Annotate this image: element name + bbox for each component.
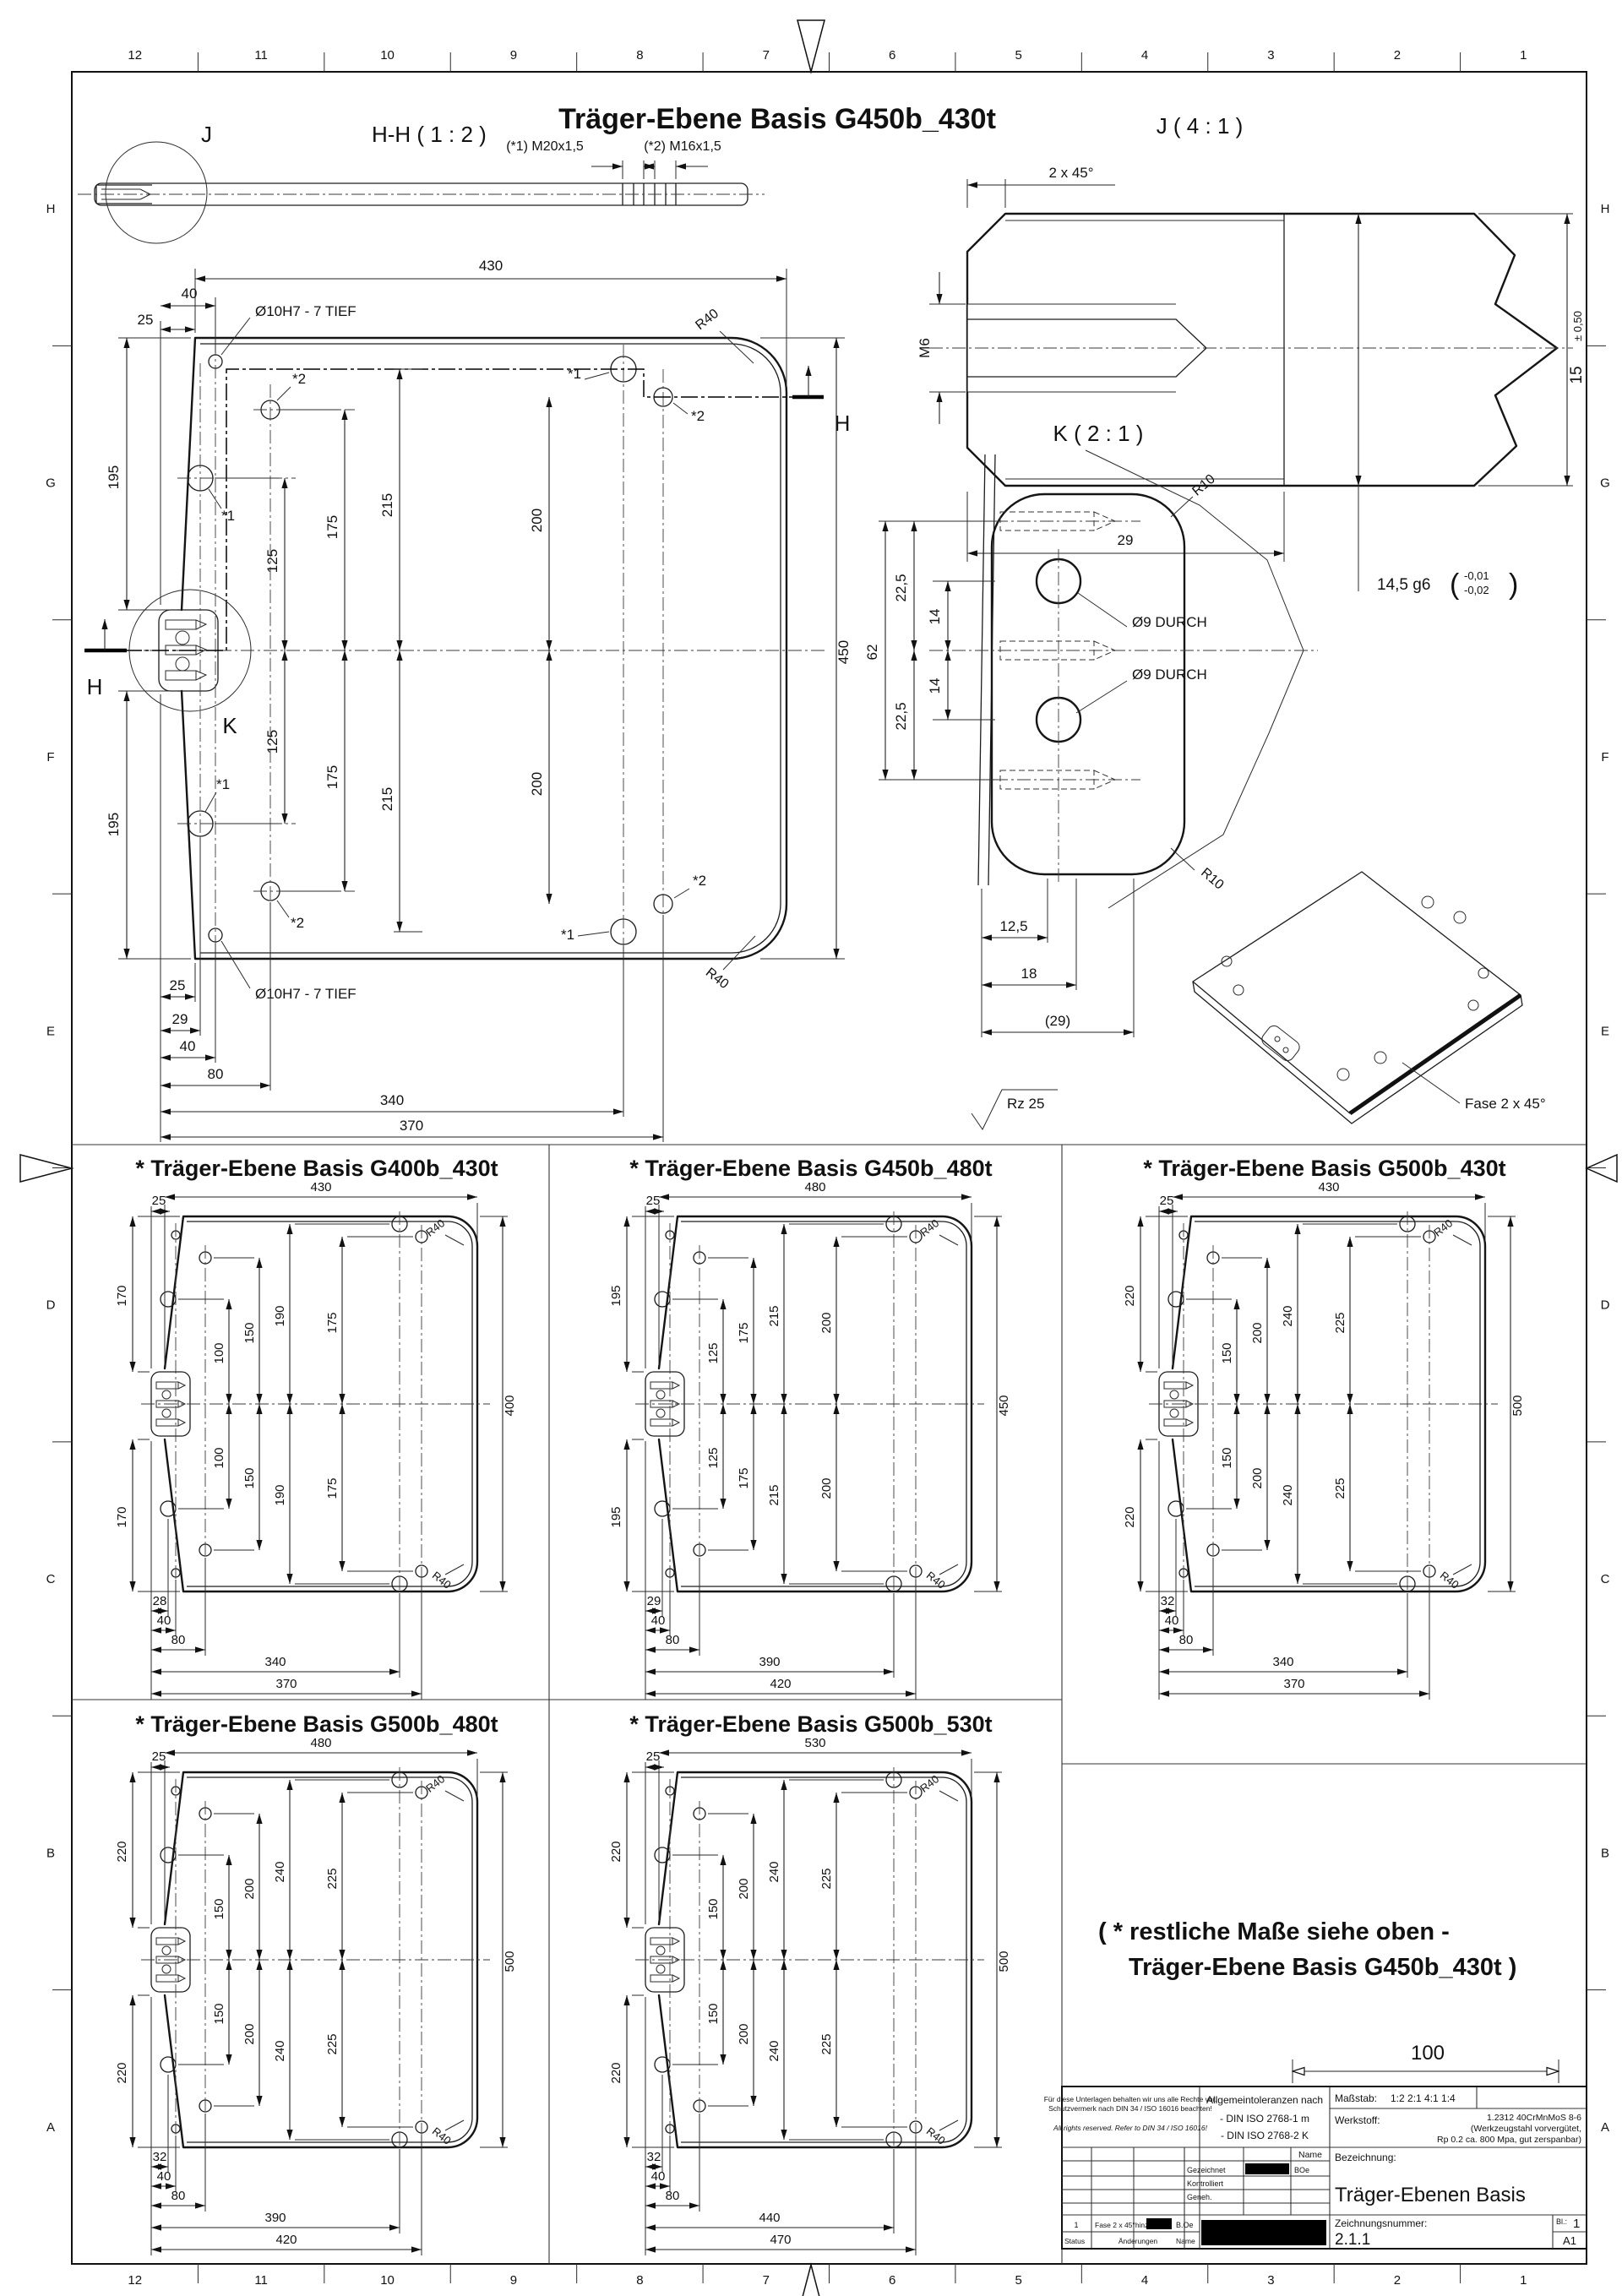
variant-title: * Träger-Ebene Basis G500b_430t [1143, 1156, 1505, 1181]
border-row-label: E [1601, 1024, 1609, 1038]
border-row-label: H [1601, 202, 1610, 216]
tb-sheet-no: 1 [1573, 2217, 1580, 2231]
dim-b80: 80 [171, 2189, 186, 2203]
dim-225-upper: 22,5 [893, 574, 909, 601]
border-row-label: C [1601, 1572, 1610, 1586]
scale-bar-value: 100 [1411, 2042, 1445, 2065]
dim-b40: 40 [651, 2169, 666, 2184]
dim-25: 25 [646, 1749, 661, 1764]
border-column-label: 1 [1520, 2273, 1527, 2288]
dim-25: 25 [1160, 1194, 1174, 1208]
tb-rev-no: 1 [1074, 2221, 1078, 2229]
border-row-label: G [46, 476, 56, 491]
border-column-label: 7 [763, 2273, 770, 2288]
dim-d1-lower: 150 [242, 1467, 257, 1488]
surface-roughness: Rz 25 [972, 1090, 1058, 1129]
variant-panel: * Träger-Ebene Basis G400b_430t 4 [115, 1156, 517, 1700]
dim-b4: 390 [264, 2211, 286, 2225]
dim-b80: 80 [666, 1633, 680, 1647]
border-column-label: 1 [1520, 48, 1527, 63]
border-column-label: 6 [889, 48, 895, 63]
tb-disclaimer-de1: Für diese Unterlagen behalten wir uns al… [1044, 2095, 1217, 2103]
dim-b5: 370 [1283, 1677, 1304, 1691]
dim-d1-lower: 200 [737, 2023, 751, 2044]
border-column-label: 8 [636, 2273, 643, 2288]
dim-d0-lower: 100 [212, 1447, 226, 1468]
border-column-label: 10 [380, 2273, 395, 2288]
tb-material-line1: 1.2312 40CrMnMoS 8-6 [1487, 2113, 1581, 2123]
dim-d3-lower: 225 [1333, 1477, 1347, 1499]
tb-tol-line2: - DIN ISO 2768-2 K [1221, 2130, 1309, 2141]
radius-k-top: R10 [1189, 472, 1217, 499]
section-hh-title: H-H ( 1 : 2 ) [372, 122, 487, 147]
border-column-label: 11 [254, 2273, 268, 2288]
roughness-value: Rz 25 [1007, 1096, 1044, 1112]
border-row-label: H [46, 202, 56, 216]
dim-b40: 40 [157, 2169, 171, 2184]
dim-d2-lower: 215 [767, 1484, 781, 1505]
dim-215-upper: 215 [379, 493, 395, 517]
dim-18: 18 [1021, 966, 1037, 982]
dim-25: 25 [138, 312, 154, 328]
dia-tol: ± 0,50 [1571, 311, 1584, 341]
dim-right: 500 [1510, 1395, 1525, 1416]
dim-d2-lower: 240 [767, 2040, 781, 2061]
dim-b40: 40 [157, 1613, 171, 1628]
dim-125-lower: 125 [264, 730, 280, 754]
radius-top: R40 [693, 307, 721, 334]
dim-d0-lower: 150 [1220, 1447, 1234, 1468]
dim-side-lower: 220 [1123, 1506, 1137, 1527]
radius-bottom: R40 [703, 966, 732, 993]
detail-circle-j-label: J [201, 122, 212, 147]
variant-panel: * Träger-Ebene Basis G500b_430t 4 [1123, 1156, 1525, 1700]
dim-b4: 390 [759, 1655, 780, 1669]
tb-disclaimer-en: All rights reserved. Refer to DIN 34 / I… [1053, 2124, 1208, 2132]
dim-d2-lower: 240 [1281, 1484, 1295, 1505]
dim-side-upper: 220 [115, 1841, 129, 1862]
redaction-box-large [1201, 2220, 1326, 2245]
dim-side-lower: 220 [115, 2062, 129, 2083]
dim-d2-upper: 215 [767, 1305, 781, 1326]
dim-d3-lower: 175 [325, 1477, 340, 1499]
fit-tol-upper: -0,01 [1464, 569, 1489, 582]
dim-b5: 470 [770, 2233, 791, 2247]
dim-side-upper: 170 [115, 1285, 129, 1306]
tb-approved-label: Geneh. [1187, 2193, 1212, 2201]
dim-40: 40 [182, 286, 198, 302]
dim-b40: 40 [180, 1038, 196, 1054]
iso-view: Fase 2 x 45° [1193, 872, 1546, 1124]
thread-callout-2: (*2) M16x1,5 [644, 139, 721, 154]
dim-25: 25 [646, 1194, 661, 1208]
dim-side-lower: 170 [115, 1506, 129, 1527]
dim-top: 430 [1318, 1180, 1339, 1194]
border-column-label: 10 [380, 48, 395, 63]
title-block: Für diese Unterlagen behalten wir uns al… [1044, 2087, 1587, 2249]
dim-b5: 420 [770, 1677, 791, 1691]
dim-b1: 29 [647, 1594, 661, 1608]
fit-paren-close: ) [1509, 569, 1518, 601]
dim-d3-upper: 175 [325, 1312, 340, 1333]
border-column-label: 2 [1394, 48, 1401, 63]
hole-label-star1-ll: *1 [216, 776, 230, 792]
dim-d3-upper: 225 [819, 1868, 834, 1889]
tb-tol-line1: - DIN ISO 2768-1 m [1220, 2113, 1309, 2125]
dim-d0-upper: 125 [706, 1342, 721, 1363]
tb-disclaimer-de2: Schutzvermerk nach DIN 34 / ISO 16016 be… [1048, 2104, 1212, 2113]
dim-right: 500 [997, 1951, 1011, 1972]
dim-d3-upper: 225 [1333, 1312, 1347, 1333]
variant-panels: * Träger-Ebene Basis G400b_430t 4 [115, 1156, 1525, 2255]
dim-b1: 32 [647, 2150, 661, 2164]
variant-title: * Träger-Ebene Basis G500b_480t [135, 1711, 498, 1737]
dim-d3-lower: 225 [819, 2033, 834, 2054]
tb-checked-label: Kontrolliert [1187, 2179, 1224, 2188]
dim-25: 25 [152, 1194, 166, 1208]
border-column-label: 12 [128, 2273, 142, 2288]
border-row-label: A [1601, 2120, 1609, 2135]
dim-225-lower: 22,5 [893, 702, 909, 730]
dim-d0-upper: 150 [212, 1898, 226, 1919]
tb-format: A1 [1563, 2234, 1576, 2247]
dim-top: 480 [804, 1180, 825, 1194]
tb-changes-label: Änderungen [1119, 2237, 1158, 2245]
redaction-box [1245, 2163, 1289, 2174]
variant-title: * Träger-Ebene Basis G400b_430t [135, 1156, 498, 1181]
dim-d1-upper: 175 [737, 1322, 751, 1343]
border-column-label: 5 [1015, 2273, 1021, 2288]
dim-side-lower: 195 [609, 1506, 623, 1527]
drawing-sheet: 121211111010998877665544332211HHGGFFEEDD… [0, 0, 1622, 2296]
tb-material-line2: (Werkzeugstahl vorvergütet, [1471, 2124, 1581, 2134]
length-dim: 29 [1118, 532, 1134, 548]
note-line1: ( * restliche Maße siehe oben - [1098, 1918, 1450, 1945]
dim-side-upper: 220 [1123, 1285, 1137, 1306]
dim-b80: 80 [1179, 1633, 1194, 1647]
redaction-box-small [1146, 2218, 1172, 2229]
border-row-label: B [46, 1846, 55, 1860]
tb-status-label: Status [1064, 2237, 1085, 2245]
dim-d1-lower: 200 [1250, 1467, 1265, 1488]
dim-200-lower: 200 [529, 772, 545, 796]
dim-top: 530 [804, 1736, 825, 1750]
dim-d0-lower: 150 [212, 2003, 226, 2024]
border-column-label: 9 [510, 48, 517, 63]
center-mark-bottom [797, 2265, 825, 2296]
border-row-label: D [46, 1298, 56, 1313]
detail-j-view: 2 x 45° M6 29 14,5 g6 ( -0,01 -0,02 ) 15… [917, 165, 1586, 601]
border-column-label: 7 [763, 48, 770, 63]
tb-scale-values: 1:2 2:1 4:1 1:4 [1391, 2092, 1456, 2104]
tb-drawing-no: 2.1.1 [1335, 2231, 1370, 2249]
border-row-label: F [46, 750, 54, 764]
dim-b4: 440 [759, 2211, 780, 2225]
border-column-label: 3 [1267, 48, 1274, 63]
detail-circle-k-label: K [222, 713, 237, 738]
dim-b5: 420 [275, 2233, 297, 2247]
hole-label-star2-lr: *2 [693, 873, 706, 889]
dim-b29: 29 [172, 1011, 188, 1027]
detail-j-title: J ( 4 : 1 ) [1157, 113, 1244, 139]
fit-paren-open: ( [1450, 569, 1460, 601]
variant-panel: * Träger-Ebene Basis G500b_480t 4 [115, 1711, 517, 2255]
hole-callout-bottom: Ø9 DURCH [1132, 666, 1207, 683]
thread-callout-1: (*1) M20x1,5 [506, 139, 584, 154]
border-column-label: 3 [1267, 2273, 1274, 2288]
hole-label-star2-ul: *2 [292, 371, 306, 387]
dim-b40: 40 [651, 1613, 666, 1628]
dim-d3-lower: 225 [325, 2033, 340, 2054]
hole-note-top: Ø10H7 - 7 TIEF [255, 303, 357, 319]
dim-14-lower: 14 [927, 678, 943, 694]
tb-rev-text: Fase 2 x 45°hinzu [1095, 2221, 1152, 2229]
tb-material-line3: Rp 0.2 ca. 800 Mpa, gut zerspanbar) [1437, 2135, 1581, 2145]
iso-chamfer-note: Fase 2 x 45° [1465, 1096, 1546, 1112]
dim-b340: 340 [380, 1092, 404, 1108]
dim-d0-lower: 150 [706, 2003, 721, 2024]
border-column-label: 6 [889, 2273, 895, 2288]
dim-d3-upper: 225 [325, 1868, 340, 1889]
dim-side-upper: 220 [609, 1841, 623, 1862]
dim-200-upper: 200 [529, 509, 545, 532]
border-column-label: 4 [1141, 48, 1148, 63]
tb-drawing-no-label: Zeichnungsnummer: [1335, 2217, 1427, 2229]
dim-b1: 28 [153, 1594, 167, 1608]
dim-29k: (29) [1045, 1013, 1070, 1029]
hole-label-star2-ur: *2 [691, 408, 705, 424]
dim-175-upper: 175 [324, 515, 340, 539]
dim-width: 430 [479, 258, 503, 274]
detail-k-title: K ( 2 : 1 ) [1053, 421, 1144, 446]
tb-sheet-label: Bl.: [1556, 2217, 1567, 2226]
border-column-label: 11 [254, 48, 268, 63]
hole-label-star1-ur: *1 [568, 366, 581, 382]
dim-d1-upper: 200 [737, 1878, 751, 1899]
dim-b80: 80 [208, 1066, 224, 1082]
variant-title: * Träger-Ebene Basis G500b_530t [629, 1711, 992, 1737]
dim-left-upper: 195 [106, 465, 122, 489]
dim-d2-lower: 240 [273, 2040, 287, 2061]
dim-125k: 12,5 [999, 918, 1027, 934]
dim-125-upper: 125 [264, 549, 280, 573]
border-column-label: 2 [1394, 2273, 1401, 2288]
dim-b25: 25 [170, 977, 186, 993]
dim-right: 500 [503, 1951, 517, 1972]
dim-14-upper: 14 [927, 609, 943, 625]
variant-panel: * Träger-Ebene Basis G450b_480t 4 [609, 1156, 1011, 1700]
dim-215-lower: 215 [379, 787, 395, 811]
fit-dim: 14,5 g6 [1377, 576, 1430, 594]
dim-b1: 32 [153, 2150, 167, 2164]
tb-material-label: Werkstoff: [1335, 2114, 1380, 2126]
dim-right: 450 [997, 1395, 1011, 1416]
dim-b4: 340 [1272, 1655, 1293, 1669]
dim-b40: 40 [1165, 1613, 1179, 1628]
dim-d0-lower: 125 [706, 1447, 721, 1468]
border-column-label: 5 [1015, 48, 1021, 63]
fit-tol-lower: -0,02 [1464, 584, 1489, 596]
dim-62: 62 [864, 645, 880, 661]
hole-label-star1-ul: *1 [221, 508, 235, 524]
border-column-label: 8 [636, 48, 643, 63]
border-column-label: 4 [1141, 2273, 1148, 2288]
dim-top: 480 [310, 1736, 331, 1750]
dim-b1: 32 [1161, 1594, 1175, 1608]
dim-b5: 370 [275, 1677, 297, 1691]
border-row-label: G [1600, 476, 1610, 491]
dim-d2-upper: 240 [767, 1861, 781, 1882]
dim-right: 400 [503, 1395, 517, 1416]
hole-callout-top: Ø9 DURCH [1132, 614, 1207, 630]
hole-label-star1-lr: *1 [561, 927, 574, 943]
dim-height: 450 [835, 640, 852, 664]
border-row-label: D [1601, 1298, 1610, 1313]
tb-scale-label: Maßstab: [1335, 2092, 1377, 2104]
tb-drawn-name: BOe [1294, 2166, 1309, 2174]
section-arrow-label-left: H [87, 674, 103, 699]
dim-d0-upper: 150 [706, 1898, 721, 1919]
dim-175-lower: 175 [324, 765, 340, 789]
dim-d2-upper: 240 [1281, 1305, 1295, 1326]
tb-designation-label: Bezeichnung: [1335, 2152, 1396, 2163]
border-column-label: 9 [510, 2273, 517, 2288]
dim-d1-upper: 200 [242, 1878, 257, 1899]
hole-label-star2-ll: *2 [291, 915, 304, 931]
variant-panel: * Träger-Ebene Basis G500b_530t 5 [609, 1711, 1011, 2255]
radius-k-bottom: R10 [1198, 866, 1226, 893]
border-row-label: B [1601, 1846, 1609, 1860]
tb-name-header: Name [1298, 2150, 1322, 2160]
tb-tol-title: Allgemeintoleranzen nach [1206, 2094, 1323, 2106]
dim-b370: 370 [400, 1118, 423, 1134]
border-row-label: A [46, 2120, 55, 2135]
border-row-label: E [46, 1024, 55, 1038]
dia-dim: 15 [1568, 366, 1586, 384]
variant-title: * Träger-Ebene Basis G450b_480t [629, 1156, 992, 1181]
border-row-label: F [1601, 750, 1608, 764]
dim-d3-upper: 200 [819, 1312, 834, 1333]
tb-drawn-label: Gezeichnet [1187, 2166, 1226, 2174]
tb-name-label: Name [1176, 2237, 1195, 2245]
dim-d0-upper: 100 [212, 1342, 226, 1363]
dim-b80: 80 [666, 2189, 680, 2203]
dim-side-lower: 220 [609, 2062, 623, 2083]
thread-dim: M6 [917, 338, 933, 358]
dim-d1-lower: 200 [242, 2023, 257, 2044]
note-panel: ( * restliche Maße siehe oben - Träger-E… [1098, 1918, 1559, 2083]
tb-designation: Träger-Ebenen Basis [1335, 2184, 1526, 2206]
main-view: H H K 430 40 25 Ø10H7 - 7 TIEF 195 195 4… [84, 258, 852, 1142]
dim-b80: 80 [171, 1633, 186, 1647]
dim-left-lower: 195 [106, 813, 122, 836]
dim-top: 430 [310, 1180, 331, 1194]
tb-rev-name: B.Oe [1176, 2221, 1194, 2229]
dim-d2-lower: 190 [273, 1484, 287, 1505]
drawing-canvas: 121211111010998877665544332211HHGGFFEEDD… [0, 0, 1622, 2296]
dim-d1-upper: 150 [242, 1322, 257, 1343]
note-line2: Träger-Ebene Basis G450b_430t ) [1129, 1954, 1516, 1981]
dim-d1-upper: 200 [1250, 1322, 1265, 1343]
chamfer-dim: 2 x 45° [1048, 165, 1093, 181]
main-title: Träger-Ebene Basis G450b_430t [558, 103, 996, 135]
center-mark-top [797, 20, 825, 72]
dim-d0-upper: 150 [1220, 1342, 1234, 1363]
dim-d3-lower: 200 [819, 1477, 834, 1499]
dim-d2-upper: 240 [273, 1861, 287, 1882]
dim-d2-upper: 190 [273, 1305, 287, 1326]
border-column-label: 12 [128, 48, 142, 63]
dim-b4: 340 [264, 1655, 286, 1669]
border-row-label: C [46, 1572, 56, 1586]
detail-k-view: 62 22,5 22,5 14 14 Ø9 DURCH Ø9 DURCH R10… [864, 450, 1318, 1037]
dim-25: 25 [152, 1749, 166, 1764]
dim-d1-lower: 175 [737, 1467, 751, 1488]
dim-side-upper: 195 [609, 1285, 623, 1306]
